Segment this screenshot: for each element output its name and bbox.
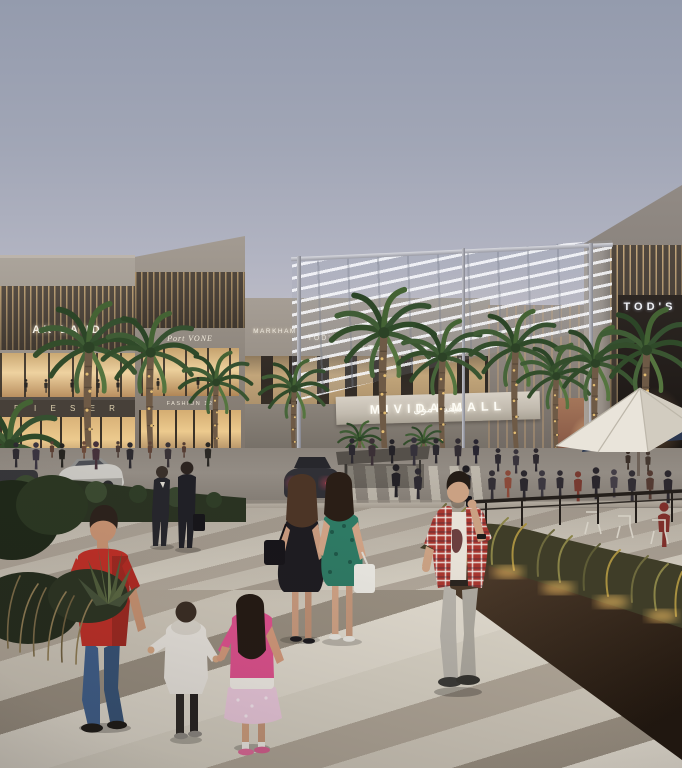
storefront-sign-fashion-12: FASHION 12 (135, 401, 245, 407)
left-mall-building: AK LAND D I E S E R (0, 255, 135, 470)
mall-name-arabic: ميفيدا مول (413, 401, 463, 415)
storefront-sign-cite: CITE (341, 344, 397, 353)
storefront-sign-markham: MARKHAM (247, 328, 303, 335)
pergola-post (462, 248, 465, 452)
storefront-sign-ak-land: AK LAND (0, 324, 135, 336)
upper-storefront-glass (141, 348, 239, 396)
upper-storefront-glass (0, 353, 135, 397)
lit-louver-facade (0, 286, 135, 350)
storefront-sign-mira: MIRA (433, 358, 473, 364)
left-mall-wing: Port VONE FASHION 12 (135, 236, 245, 468)
pavement-distance-haze (0, 500, 682, 630)
mall-name-fascia: MIVIDA MALL ميفيدا مول (336, 391, 541, 425)
storefront-sign-tods-small: TOD'S (297, 335, 349, 342)
storefront-sign-port-vone: Port VONE (135, 334, 245, 343)
storefront-sign-tods: TOD'S (618, 301, 682, 313)
lit-louver-facade (135, 272, 245, 328)
storefront-sign-dieser: D I E S E R (0, 400, 135, 417)
center-mall-block: MARKHAM TOD'S CITE MIRA (245, 298, 490, 468)
pergola-post (297, 256, 301, 468)
tods-store-portal (618, 295, 682, 470)
mall-plaza-rendering: AK LAND D I E S E R Port VONE FASHION 12… (0, 0, 682, 768)
